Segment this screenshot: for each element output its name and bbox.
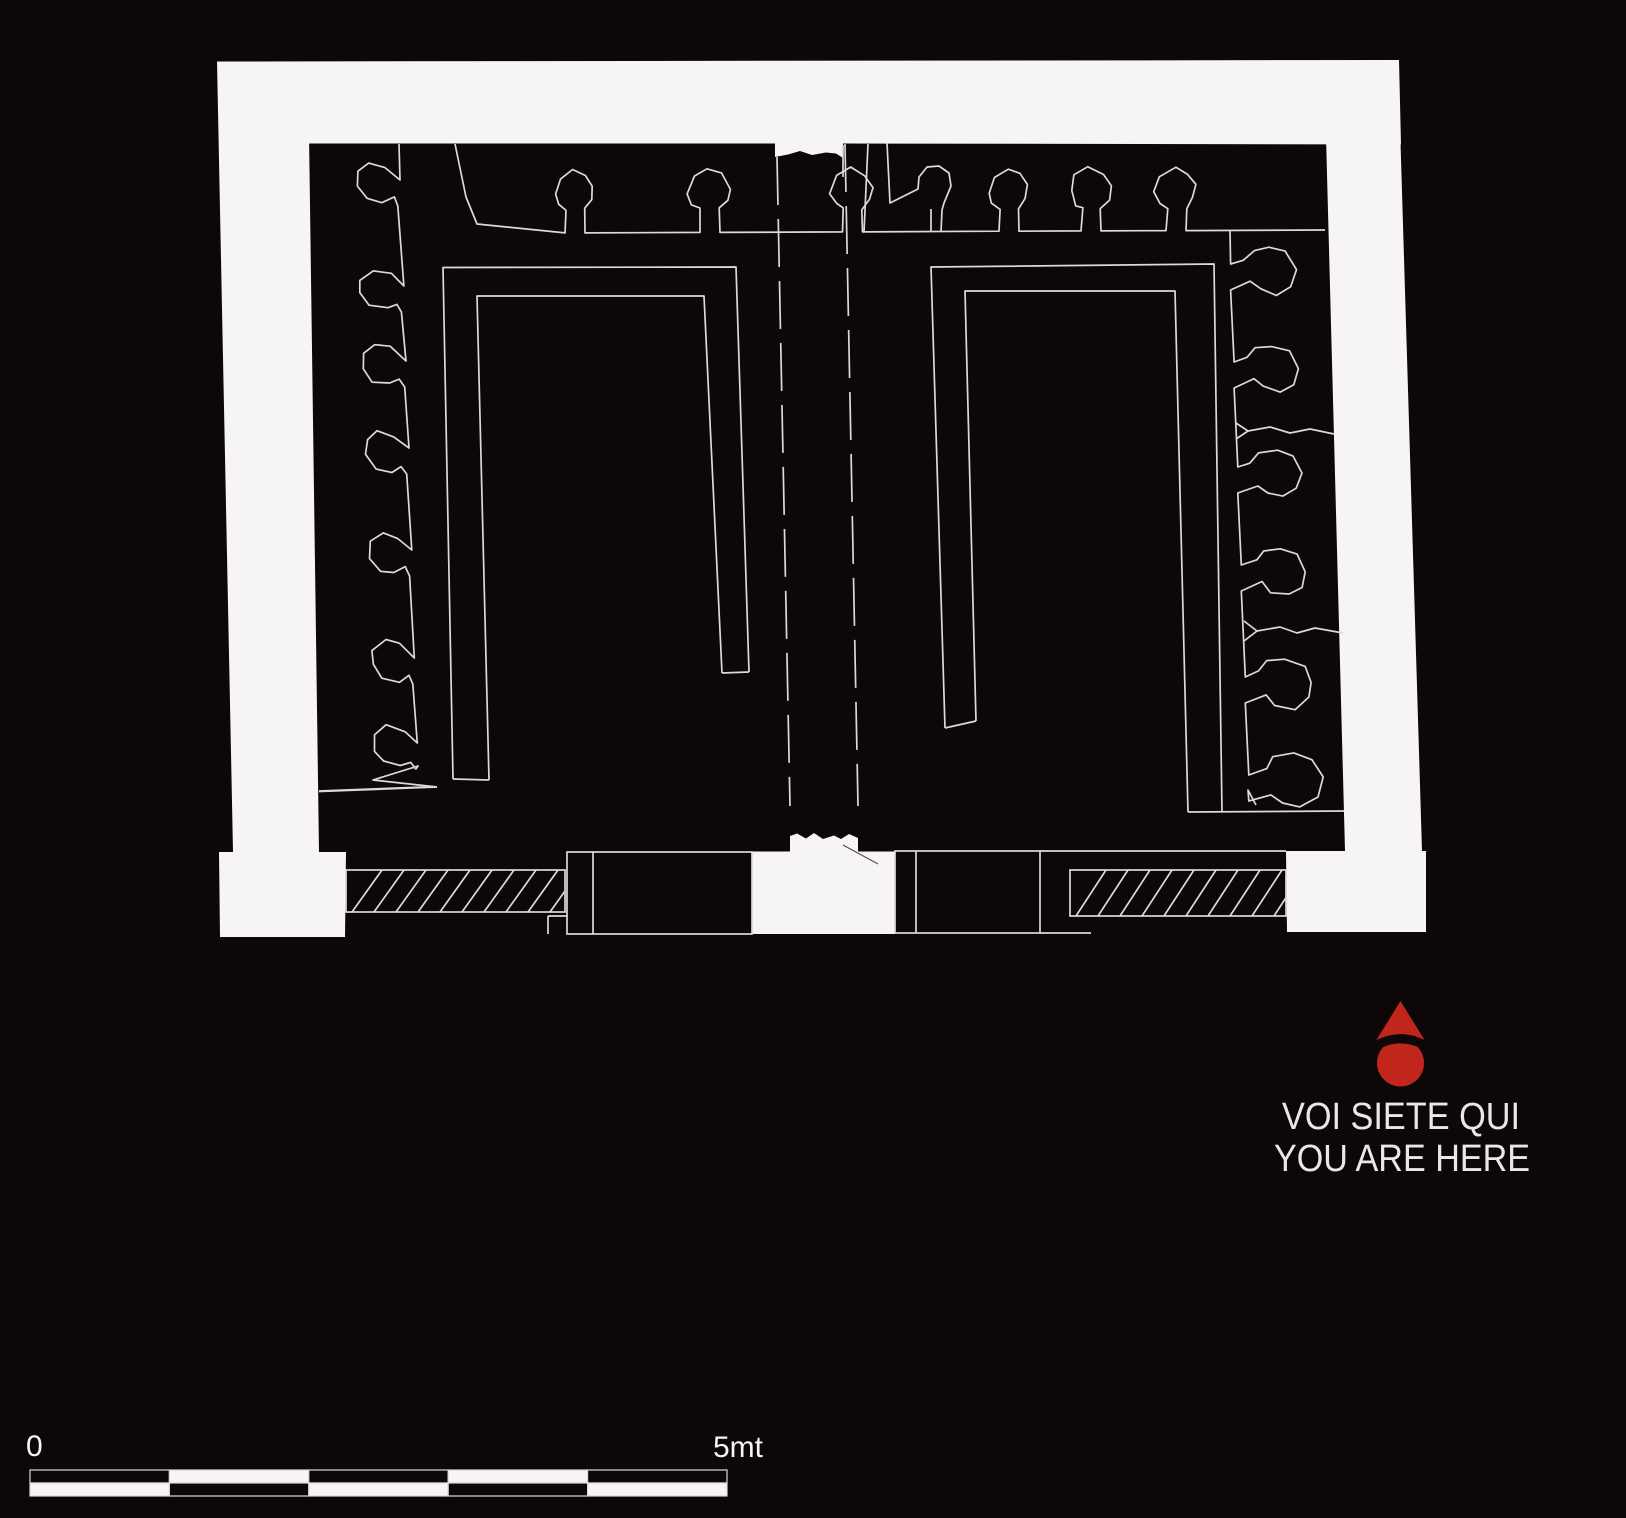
svg-text:YOU ARE HERE: YOU ARE HERE — [1274, 1138, 1530, 1180]
svg-text:VOI SIETE QUI: VOI SIETE QUI — [1282, 1096, 1520, 1138]
svg-text:5mt: 5mt — [713, 1431, 764, 1464]
svg-text:0: 0 — [26, 1430, 43, 1463]
